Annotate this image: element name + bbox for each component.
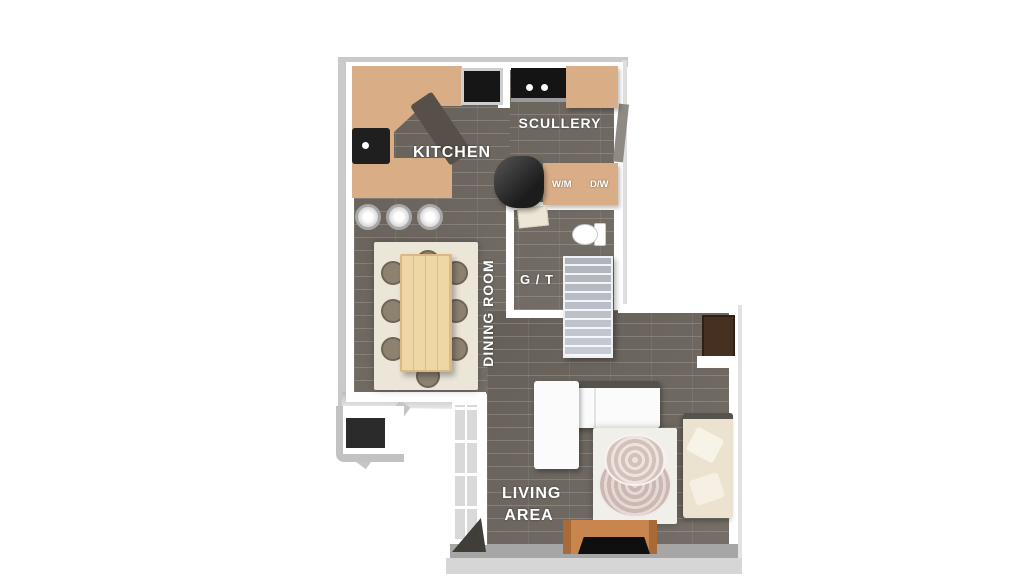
washing-machine-label: W/M [543,179,581,190]
sink-tap-left [526,84,533,91]
oven [461,68,503,105]
sink-tap-right [541,84,548,91]
guest-toilet-label: G / T [514,272,560,287]
scullery-corner-counter [566,66,618,108]
bar-stool-2 [386,204,412,230]
washing-machine-drum [494,156,544,208]
wall-gt-bottom [506,310,568,318]
staircase [563,256,613,358]
dishwasher-label: D/W [581,179,619,190]
corner-cabinet-ledge [697,356,737,368]
bar-stool-1 [355,204,381,230]
corner-sofa-vertical [534,381,579,469]
gt-basin [517,205,549,228]
wall-dining-bottom [346,392,462,402]
window-wall-glass [452,402,480,542]
scullery-label: SCULLERY [518,115,602,131]
living-area-label-line2: AREA [504,507,554,525]
toilet-bowl [572,224,598,245]
cooktop [352,128,390,164]
dining-table [400,254,452,372]
tv [578,537,650,554]
coffee-table-upper [604,434,666,486]
scullery-sink [511,68,566,102]
dining-room-label: DINING ROOM [480,253,496,373]
cooktop-knob [362,142,369,149]
corner-cabinet [702,315,735,358]
kitchen-label: KITCHEN [408,144,496,162]
wall-gt-left [506,202,514,318]
bay-window [343,415,388,451]
living-area-label-line1: LIVING [502,485,560,503]
wm-dw-counter: W/M D/W [543,163,618,205]
wall-living-top [618,304,738,313]
exterior-edge-bottom [446,558,742,574]
floor-plan-canvas: W/M D/W KITCHEN SCULLERY G / T DINING RO… [0,0,1024,585]
bar-stool-3 [417,204,443,230]
